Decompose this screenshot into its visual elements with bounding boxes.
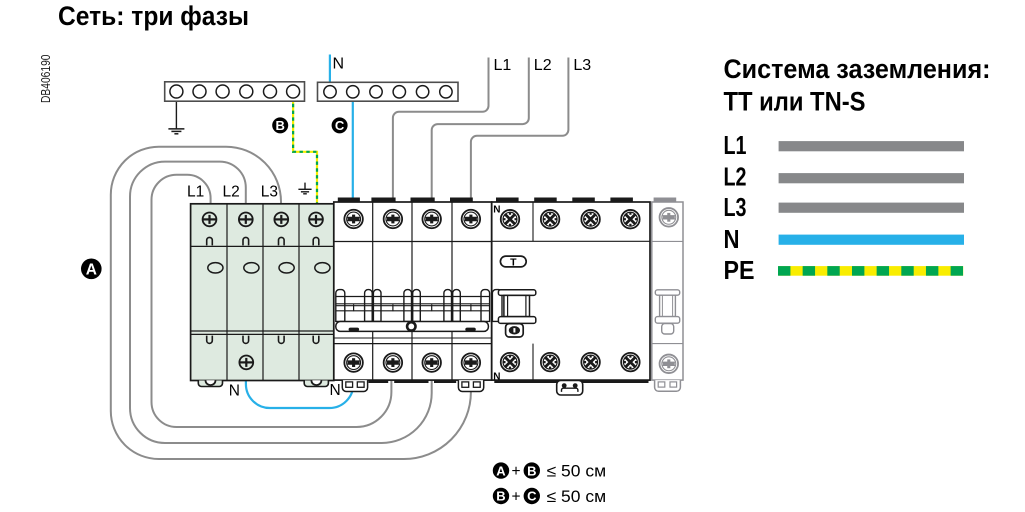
svg-text:+: + [512,463,521,480]
svg-text:L1: L1 [724,130,747,160]
svg-text:PE: PE [724,255,755,285]
svg-text:C: C [335,118,345,133]
svg-text:L1: L1 [187,184,204,201]
svg-text:C: C [527,489,537,504]
svg-text:A: A [86,261,97,278]
svg-text:Сеть: три фазы: Сеть: три фазы [58,1,249,31]
svg-text:DB406190: DB406190 [39,54,53,103]
svg-text:T: T [510,257,517,269]
svg-text:L1: L1 [494,57,512,74]
svg-text:L2: L2 [724,162,747,192]
svg-text:L2: L2 [534,57,552,74]
svg-text:+: + [512,489,521,506]
svg-text:N: N [229,383,240,400]
svg-text:A: A [496,463,506,478]
svg-text:≤ 50 см: ≤ 50 см [547,488,607,506]
svg-text:L2: L2 [223,184,240,201]
svg-text:B: B [496,489,505,504]
svg-text:L3: L3 [573,57,591,74]
svg-text:N: N [724,224,740,254]
svg-text:B: B [276,118,285,133]
svg-text:Система заземления:: Система заземления: [724,54,991,84]
svg-text:N: N [333,56,345,73]
svg-text:L3: L3 [261,184,278,201]
svg-text:≤ 50 см: ≤ 50 см [547,462,607,480]
svg-text:B: B [527,463,536,478]
svg-text:N: N [493,205,500,216]
svg-text:L3: L3 [724,192,747,222]
svg-text:ТТ или TN-S: ТТ или TN-S [724,87,866,117]
svg-text:N: N [330,382,341,399]
